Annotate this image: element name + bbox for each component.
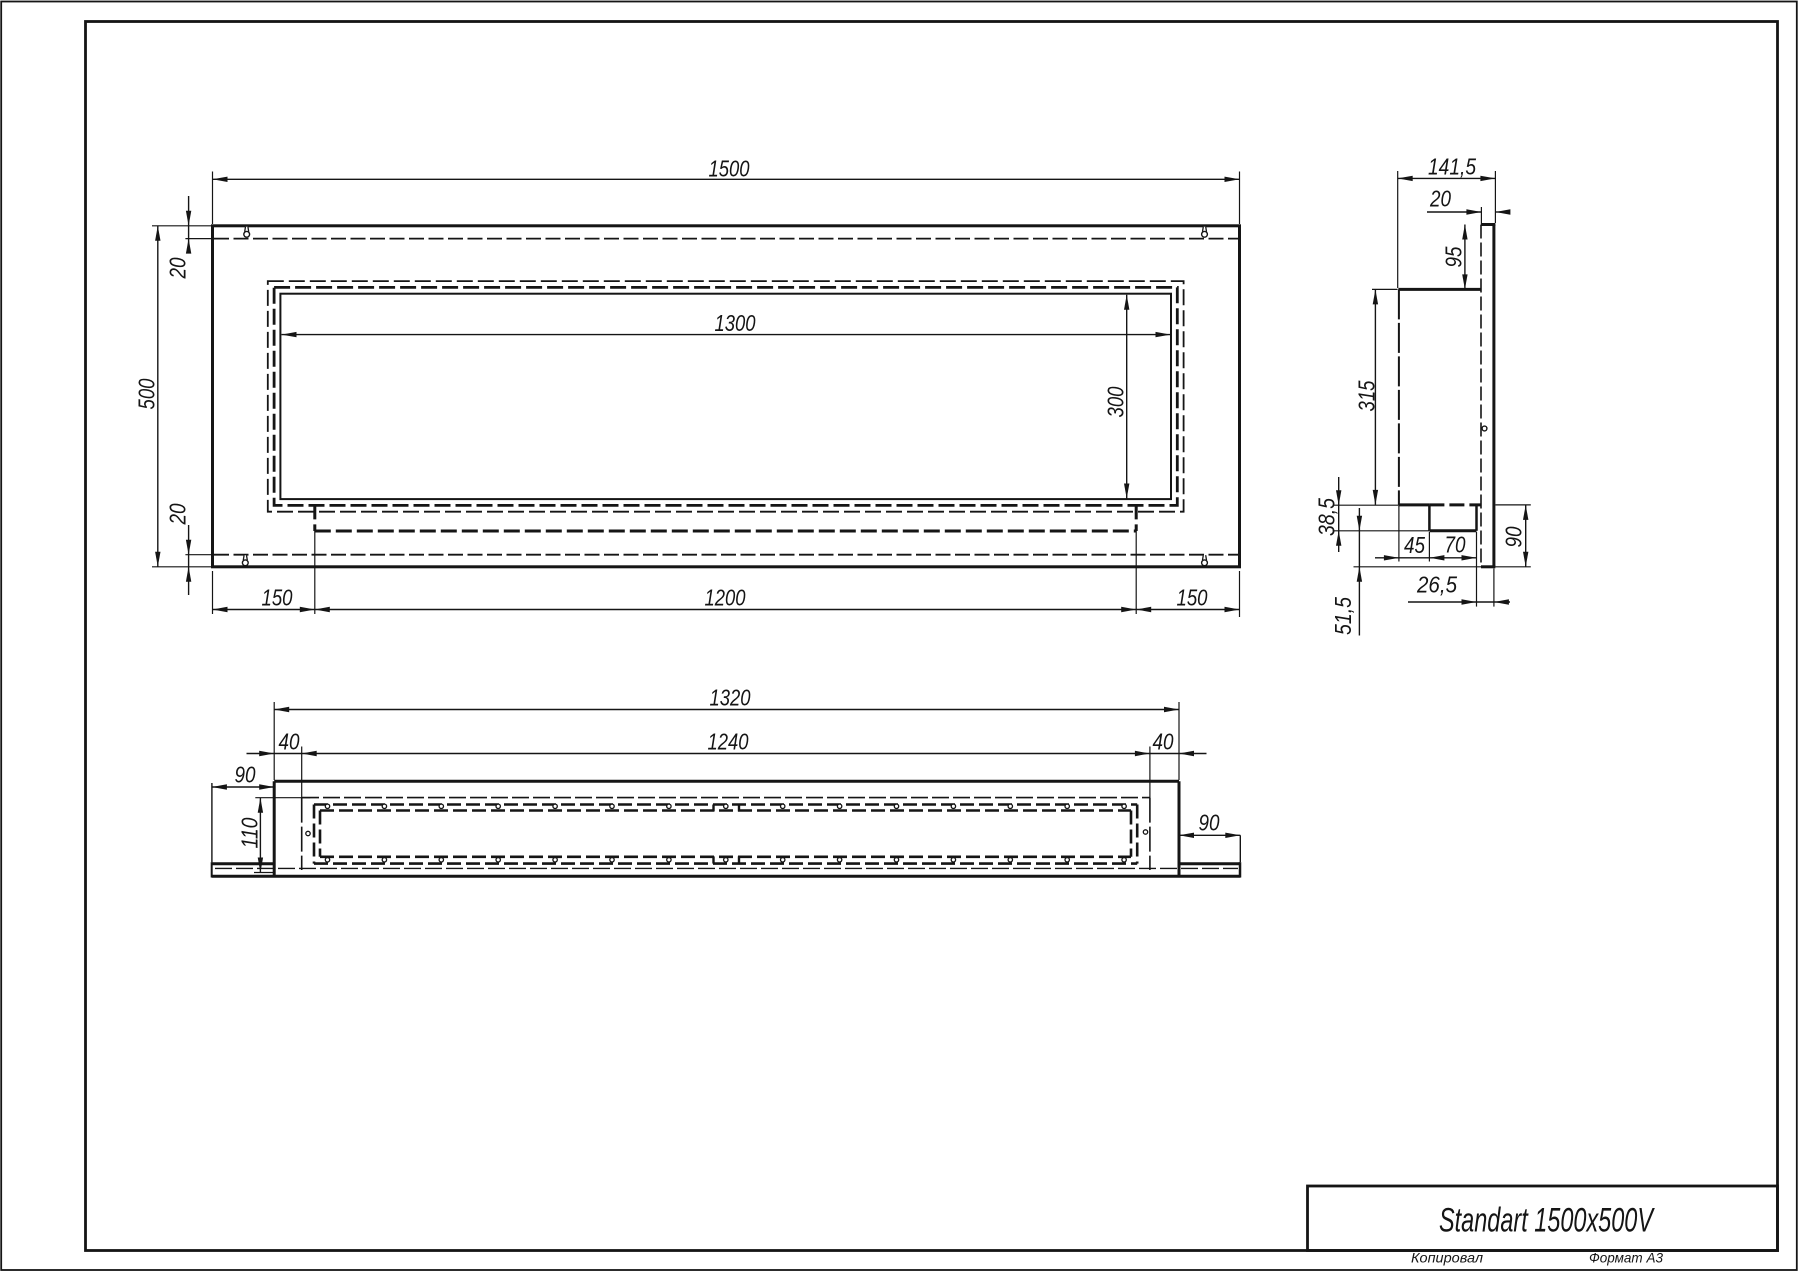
svg-text:90: 90 [235,762,256,788]
svg-text:40: 40 [279,729,300,755]
svg-text:150: 150 [1177,585,1208,611]
svg-text:141,5: 141,5 [1428,154,1476,180]
svg-text:315: 315 [1354,380,1380,411]
svg-text:1500: 1500 [709,156,750,182]
svg-text:1240: 1240 [708,729,749,755]
svg-text:90: 90 [1199,810,1220,836]
svg-text:38,5: 38,5 [1314,498,1340,536]
svg-text:150: 150 [262,585,293,611]
svg-text:Формат А3: Формат А3 [1589,1250,1663,1266]
svg-text:110: 110 [236,817,262,848]
svg-text:20: 20 [164,257,190,279]
svg-text:Копировал: Копировал [1411,1250,1483,1266]
svg-text:40: 40 [1153,729,1174,755]
svg-text:26,5: 26,5 [1416,572,1457,598]
svg-text:20: 20 [164,503,190,525]
svg-text:45: 45 [1404,532,1425,558]
svg-text:300: 300 [1103,386,1129,417]
svg-text:Standart 1500x500V: Standart 1500x500V [1439,1202,1655,1240]
svg-text:90: 90 [1501,526,1527,547]
svg-text:1320: 1320 [710,685,751,711]
svg-text:51,5: 51,5 [1330,597,1356,635]
svg-text:20: 20 [1429,186,1451,212]
svg-text:1300: 1300 [715,310,756,336]
svg-text:1200: 1200 [705,585,746,611]
svg-text:95: 95 [1441,246,1467,267]
svg-text:70: 70 [1445,532,1466,558]
svg-text:500: 500 [134,378,160,409]
